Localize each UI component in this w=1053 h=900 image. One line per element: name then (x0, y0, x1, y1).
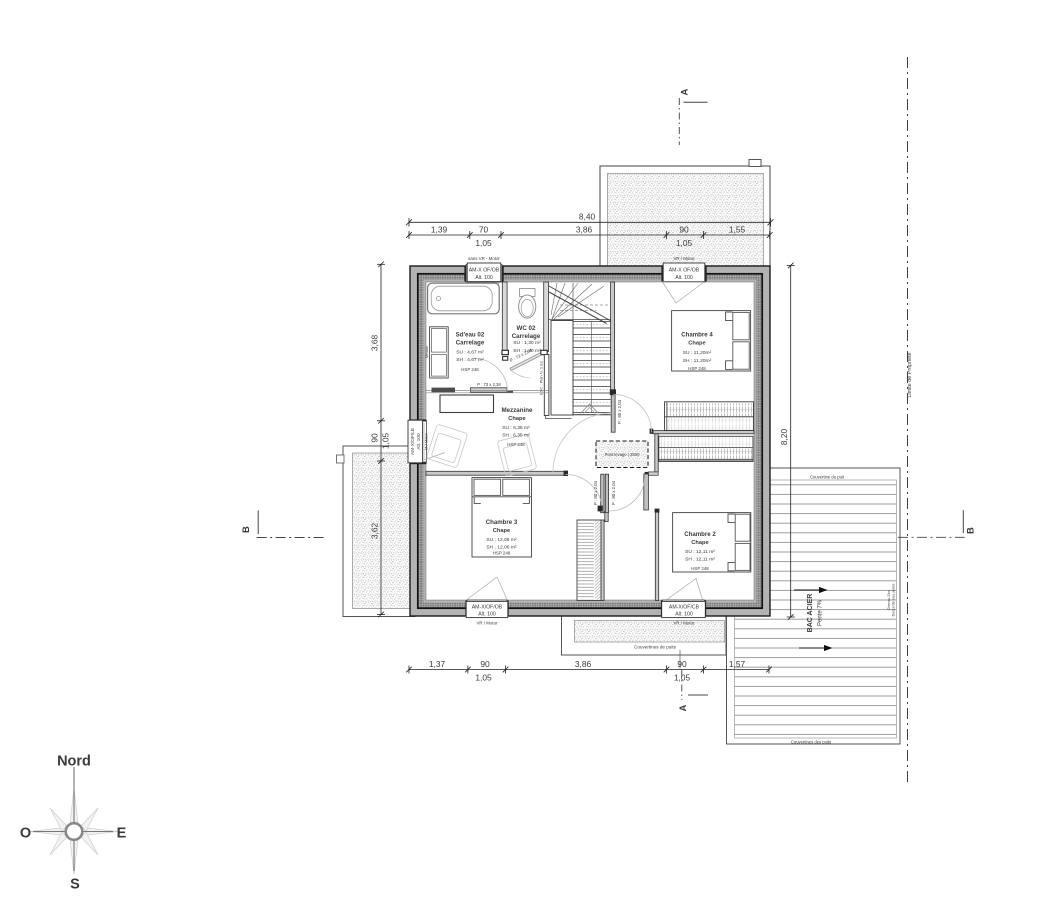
svg-text:AM-X OF/OB: AM-X OF/OB (469, 268, 500, 274)
svg-text:BAC ACIER: BAC ACIER (807, 594, 814, 633)
svg-text:1,05: 1,05 (475, 672, 492, 682)
svg-text:Chape: Chape (688, 341, 705, 347)
svg-text:P : 80 x 2,04: P : 80 x 2,04 (617, 399, 622, 424)
svg-text:1,05: 1,05 (676, 238, 693, 248)
svg-text:P : 80 x 2,04: P : 80 x 2,04 (593, 480, 598, 505)
svg-text:VR / Motor: VR / Motor (674, 621, 696, 626)
svg-text:Carrelage: Carrelage (512, 333, 541, 340)
svg-text:Meuble: Meuble (425, 346, 429, 358)
svg-text:ESC : Plan N. 1 Es: ESC : Plan N. 1 Es (539, 361, 544, 395)
svg-text:O: O (20, 826, 31, 842)
svg-text:Chape: Chape (691, 540, 708, 546)
svg-text:Nord: Nord (57, 754, 91, 770)
svg-text:E: E (117, 826, 127, 842)
svg-text:90: 90 (480, 659, 490, 669)
svg-text:1,37: 1,37 (429, 659, 446, 669)
svg-text:AM-X OF/OB: AM-X OF/OB (669, 268, 700, 274)
svg-text:Chape: Chape (508, 416, 525, 422)
svg-text:A: A (680, 88, 691, 95)
svg-text:P : 80 x 2,04: P : 80 x 2,04 (611, 480, 616, 505)
svg-text:3,62: 3,62 (370, 523, 380, 540)
svg-text:Chambre 3: Chambre 3 (486, 519, 518, 526)
svg-text:sans VR - Motor: sans VR - Motor (468, 256, 500, 261)
svg-text:SH : 12,11 m²: SH : 12,11 m² (685, 557, 715, 563)
svg-text:Chape: Chape (493, 528, 510, 534)
svg-text:Alt. 100: Alt. 100 (478, 612, 496, 618)
svg-text:SU : 12,11 m²: SU : 12,11 m² (685, 549, 715, 555)
svg-text:Alt. 100: Alt. 100 (416, 433, 422, 450)
svg-text:90: 90 (679, 225, 689, 235)
svg-text:Chambre 2: Chambre 2 (684, 531, 716, 538)
svg-text:P : 73 x 2,38: P : 73 x 2,38 (477, 382, 501, 387)
svg-text:Couvertines de puits: Couvertines de puits (634, 645, 677, 650)
svg-text:Pont levage | 2500: Pont levage | 2500 (605, 452, 641, 457)
svg-text:1,39: 1,39 (431, 225, 448, 235)
svg-text:HSP 248: HSP 248 (461, 367, 479, 372)
svg-text:1,05: 1,05 (475, 238, 492, 248)
svg-text:SH : 1,30 m²: SH : 1,30 m² (513, 348, 541, 354)
svg-text:70: 70 (479, 225, 489, 235)
svg-text:SU : 12,06 m²: SU : 12,06 m² (486, 537, 517, 543)
svg-text:AM-X/OF/OB: AM-X/OF/OB (472, 605, 503, 611)
svg-text:VR / Motor: VR / Motor (477, 621, 499, 626)
svg-text:Sd'eau 02: Sd'eau 02 (456, 332, 485, 339)
svg-text:B: B (966, 527, 977, 534)
svg-text:90: 90 (677, 659, 687, 669)
svg-text:Couvertines des puits: Couvertines des puits (791, 740, 831, 745)
svg-text:8,20: 8,20 (779, 429, 789, 446)
svg-text:SU : 11,20m²: SU : 11,20m² (683, 350, 712, 356)
svg-text:AM-X/OF/LE: AM-X/OF/LE (410, 428, 416, 455)
svg-text:1,57: 1,57 (729, 659, 746, 669)
svg-text:Carrelage: Carrelage (456, 340, 485, 347)
svg-text:S: S (70, 877, 80, 893)
svg-text:SH : 4,67 m²: SH : 4,67 m² (456, 357, 484, 363)
svg-text:8,40: 8,40 (579, 212, 596, 222)
svg-text:Chenau Zinc: Chenau Zinc (887, 590, 891, 611)
svg-text:SU : 4,67 m²: SU : 4,67 m² (456, 350, 484, 356)
svg-text:Couvertine du puit: Couvertine du puit (810, 475, 845, 480)
svg-text:90: 90 (370, 433, 380, 443)
svg-text:3,86: 3,86 (575, 659, 592, 669)
svg-text:B: B (241, 526, 252, 533)
svg-text:SH : 11,20m²: SH : 11,20m² (683, 358, 712, 364)
svg-text:Alt. 100: Alt. 100 (675, 275, 693, 281)
svg-text:SU : 6,35 m²: SU : 6,35 m² (502, 425, 530, 431)
svg-text:HSP 248: HSP 248 (493, 551, 511, 556)
svg-text:1,05: 1,05 (381, 433, 391, 450)
svg-text:SU : 1,30 m²: SU : 1,30 m² (513, 340, 541, 346)
svg-text:HSP 248: HSP 248 (688, 366, 706, 371)
svg-text:WC 02: WC 02 (517, 325, 536, 332)
svg-text:3,86: 3,86 (576, 225, 593, 235)
svg-text:SH : 6,35 m²: SH : 6,35 m² (502, 433, 530, 439)
svg-text:1,55: 1,55 (729, 225, 746, 235)
svg-text:Alt. 100: Alt. 100 (475, 275, 493, 281)
svg-text:HSP 248: HSP 248 (691, 566, 709, 571)
svg-text:Limite de Propriété: Limite de Propriété (907, 352, 913, 397)
svg-text:AM-X/OF/CB: AM-X/OF/CB (669, 605, 700, 611)
svg-text:A: A (678, 704, 689, 711)
svg-text:3,68: 3,68 (370, 335, 380, 352)
svg-text:Pente 7%: Pente 7% (818, 599, 824, 626)
svg-text:VR / Motor: VR / Motor (674, 256, 696, 261)
svg-text:HSP 248: HSP 248 (507, 442, 525, 447)
svg-text:Mezzanine: Mezzanine (502, 407, 534, 414)
svg-text:Alt. 100: Alt. 100 (675, 612, 693, 618)
svg-text:Chambre 4: Chambre 4 (681, 332, 713, 339)
svg-text:Descente eau usées: Descente eau usées (892, 583, 896, 616)
